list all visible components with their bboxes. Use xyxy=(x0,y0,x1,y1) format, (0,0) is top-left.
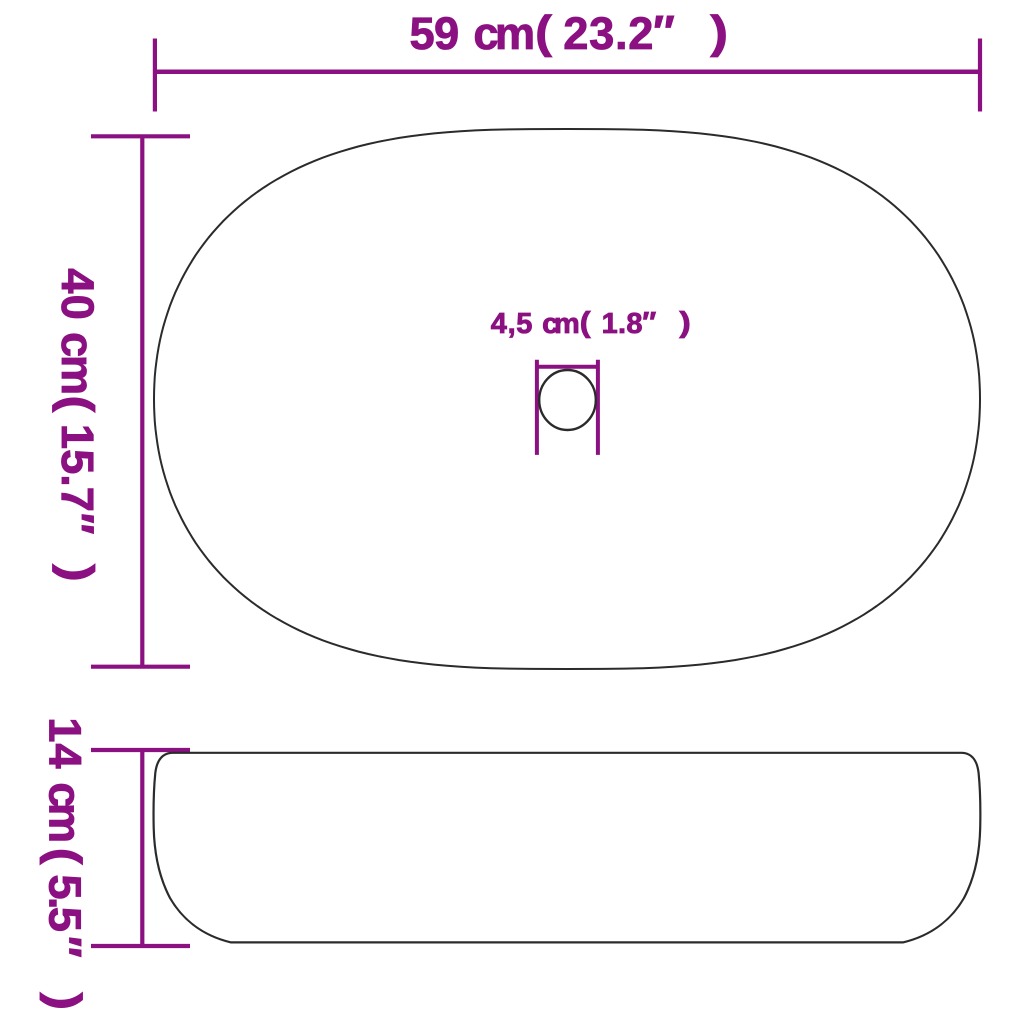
svg-text:1.8: 1.8 xyxy=(602,308,643,340)
svg-text:″: ″ xyxy=(651,7,675,58)
svg-text:14: 14 xyxy=(39,717,90,769)
svg-text:cm: cm xyxy=(52,332,103,393)
svg-text:(: ( xyxy=(580,306,592,339)
svg-text:cm: cm xyxy=(473,8,532,59)
svg-text:): ) xyxy=(52,564,102,582)
svg-text:″: ″ xyxy=(641,307,656,339)
svg-text:59: 59 xyxy=(410,8,459,59)
svg-text:(: ( xyxy=(52,396,103,413)
svg-text:″: ″ xyxy=(39,934,90,958)
svg-text:″: ″ xyxy=(52,510,103,534)
svg-text:cm: cm xyxy=(542,308,578,340)
svg-text:4,5: 4,5 xyxy=(491,308,533,340)
svg-text:23.2: 23.2 xyxy=(563,8,654,59)
svg-text:5.5: 5.5 xyxy=(39,874,90,930)
svg-text:): ) xyxy=(39,992,89,1010)
svg-text:cm: cm xyxy=(39,782,90,841)
svg-text:15.7: 15.7 xyxy=(52,424,103,512)
svg-text:): ) xyxy=(710,7,728,57)
svg-text:(: ( xyxy=(39,848,90,865)
svg-text:40: 40 xyxy=(52,268,103,321)
svg-text:(: ( xyxy=(535,7,552,58)
svg-text:): ) xyxy=(679,306,690,339)
